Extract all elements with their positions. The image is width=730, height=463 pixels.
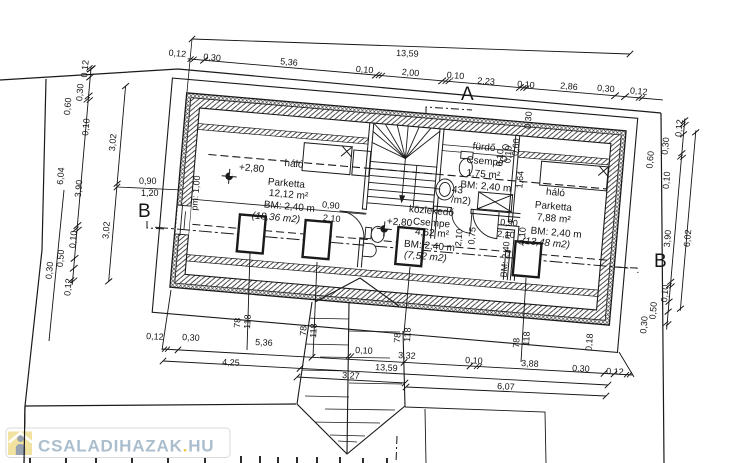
svg-text:0,10: 0,10 [516,227,527,245]
svg-text:+2,80: +2,80 [386,216,413,229]
svg-text:CSALADIHAZAK.HU: CSALADIHAZAK.HU [38,437,214,456]
svg-text:13,59: 13,59 [396,48,419,59]
svg-text:2,10: 2,10 [453,228,464,246]
svg-text:0,12: 0,12 [630,86,648,97]
svg-text:3,90: 3,90 [73,179,84,197]
svg-text:0,10: 0,10 [465,355,483,366]
svg-text:5,36: 5,36 [255,337,273,348]
svg-text:0,10: 0,10 [494,149,505,167]
svg-text:B: B [138,201,151,222]
svg-text:0,30: 0,30 [597,83,615,94]
svg-text:78: 78 [232,318,243,329]
svg-text:4,25: 4,25 [222,357,240,368]
svg-text:A: A [461,84,474,105]
svg-text:2,86: 2,86 [560,81,578,92]
svg-text:0,90: 0,90 [139,176,157,186]
svg-text:0,90: 0,90 [322,199,340,210]
svg-text:0,10: 0,10 [659,284,670,302]
svg-text:0,60: 0,60 [644,151,655,169]
svg-text:0,10: 0,10 [80,118,91,136]
svg-text:2,00: 2,00 [401,67,419,78]
svg-text:3,27: 3,27 [342,370,360,381]
svg-text:0,10: 0,10 [446,70,464,81]
svg-text:2,23: 2,23 [477,75,495,86]
svg-text:3,32: 3,32 [398,350,416,361]
svg-text:6,02: 6,02 [682,229,693,247]
svg-text:0,12: 0,12 [168,48,186,59]
svg-text:0,12: 0,12 [146,331,164,342]
svg-text:78: 78 [392,333,403,344]
svg-text:háló: háló [546,187,566,200]
svg-text:fürdő: fürdő [472,141,496,154]
svg-text:0,30: 0,30 [182,332,200,343]
svg-text:5,36: 5,36 [280,56,298,67]
svg-text:118: 118 [242,314,253,329]
svg-text:0,12: 0,12 [606,366,624,377]
svg-text:13,59: 13,59 [375,362,398,373]
svg-text:0,12: 0,12 [673,119,684,137]
svg-text:78: 78 [511,338,522,349]
svg-text:0,30: 0,30 [44,261,55,279]
svg-text:0,30: 0,30 [203,52,221,63]
svg-text:0,75: 0,75 [466,227,477,245]
svg-text:118: 118 [521,331,532,346]
svg-text:0,60: 0,60 [62,97,73,115]
svg-text:0,10: 0,10 [661,171,672,189]
svg-text:0,10: 0,10 [355,345,373,356]
svg-text:+2,80: +2,80 [238,162,265,175]
svg-text:0,10: 0,10 [517,79,535,90]
svg-text:0,18: 0,18 [584,333,595,351]
svg-text:0,30: 0,30 [638,316,649,334]
svg-text:6,04: 6,04 [55,167,66,185]
svg-text:6,07: 6,07 [497,381,515,392]
svg-text:78: 78 [298,326,309,337]
svg-text:118: 118 [402,327,413,342]
svg-text:háló: háló [284,158,304,171]
svg-text:3,02: 3,02 [107,133,118,151]
svg-text:0,30: 0,30 [572,363,590,374]
svg-text:/m2): /m2) [450,195,471,208]
svg-text:0,12: 0,12 [62,278,73,296]
svg-text:1,64: 1,64 [514,170,525,188]
svg-text:118: 118 [308,323,319,338]
svg-text:0,10: 0,10 [355,64,373,75]
svg-text:B: B [654,251,667,272]
svg-text:2,10: 2,10 [323,213,341,224]
svg-text:3,90: 3,90 [662,229,673,247]
svg-text:3,02: 3,02 [100,221,111,239]
svg-text:0,90: 0,90 [500,217,518,228]
svg-text:3,88: 3,88 [521,358,539,369]
svg-text:0,10: 0,10 [67,230,78,248]
svg-text:0,30: 0,30 [74,83,85,101]
svg-text:0,30: 0,30 [522,111,533,129]
svg-text:1,20: 1,20 [141,188,159,198]
